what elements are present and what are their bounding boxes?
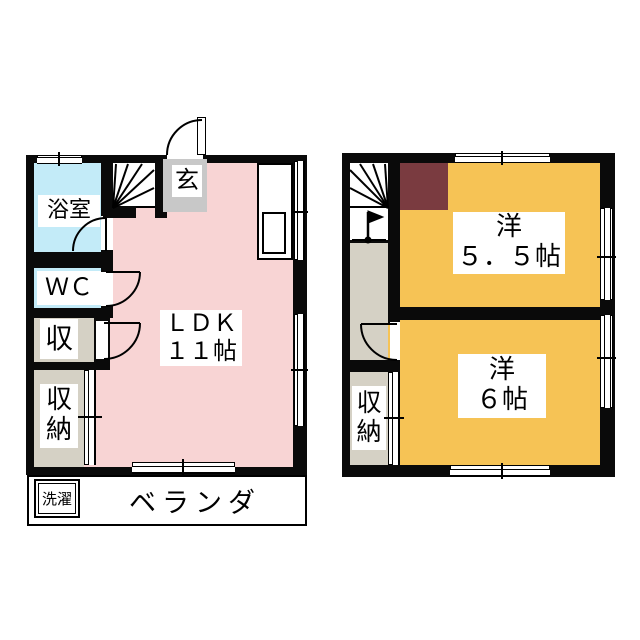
room-5-5-label-box: 洋 ５．５帖: [453, 212, 565, 274]
f1-window-bottom-mullion: [132, 466, 235, 473]
storage-label-box: 収: [40, 319, 78, 359]
f2-closet-label-box: 収 納: [352, 386, 386, 450]
f1-window-top-bathroom: [37, 155, 82, 164]
f2-closet-sliding-door: [388, 372, 400, 465]
f2-room6-doorway: [390, 322, 400, 360]
f1-closet-sliding-door-rail: [88, 370, 95, 465]
f2-window-right-upper: [600, 208, 613, 300]
f1-kitchen-counter: [257, 163, 293, 260]
f1-storage-doorway: [96, 321, 108, 359]
f1-window-right-upper: [294, 161, 305, 260]
f2-window-bottom-mullion: [450, 469, 550, 476]
f2-closet-sliding-door-rail: [392, 372, 399, 465]
f1-stairs: [113, 163, 155, 208]
f1-closet-label-char1: 収: [46, 386, 72, 416]
wc-label: ＷＣ: [45, 274, 93, 302]
f1-wall-understair: [103, 206, 136, 218]
entrance-label: 玄: [175, 167, 199, 195]
f1-entrance-door-leaf: [197, 117, 206, 155]
f1-closet-label-char2: 納: [46, 416, 72, 446]
room-6-label-line1: 洋: [489, 356, 515, 386]
floorplan-canvas: 浴室 ＷＣ 収 収 納 玄 ＬＤＫ １１帖 洗濯 ベランダ: [0, 0, 640, 640]
f2-closet-label-char1: 収: [356, 389, 381, 418]
f2-wall-corridor-closet: [342, 360, 400, 372]
f2-window-right-lower-mullion: [604, 315, 611, 408]
f2-window-top-mullion: [455, 156, 550, 163]
f2-wall-vertical: [388, 163, 400, 323]
wc-label-box: ＷＣ: [37, 271, 101, 305]
ldk-label-line1: ＬＤＫ: [165, 310, 237, 338]
ldk-label-line2: １１帖: [165, 338, 237, 366]
storage-label: 収: [45, 323, 73, 355]
room-5-5-label-line2: ５．５帖: [457, 243, 561, 273]
veranda-label-box: ベランダ: [85, 480, 305, 520]
f2-stairs: [350, 163, 388, 208]
f1-window-bottom: [132, 462, 235, 474]
f2-window-bottom: [450, 465, 550, 477]
f1-wall-wc-storage: [34, 308, 110, 318]
f1-closet-label-box: 収 納: [40, 384, 78, 448]
ldk-label-box: ＬＤＫ １１帖: [160, 310, 242, 366]
f1-kitchen-sink: [262, 212, 286, 254]
laundry-box: 洗濯: [34, 479, 80, 518]
room-5-5-label-line1: 洋: [496, 213, 522, 243]
f1-window-right-lower: [294, 314, 305, 426]
laundry-label: 洗濯: [42, 488, 72, 509]
f1-window-right-upper-mullion: [297, 161, 304, 260]
room-6-label-box: 洋 ６帖: [458, 354, 546, 418]
f2-stair-arrow-area: [350, 208, 388, 242]
entrance-label-box: 玄: [172, 165, 202, 197]
f2-wall-room-divider: [388, 307, 607, 320]
room-6-label-line2: ６帖: [476, 386, 528, 416]
f2-closet-label-char2: 納: [356, 418, 381, 447]
laundry-box-inner: 洗濯: [38, 483, 76, 514]
f1-wc-doorway: [101, 272, 113, 306]
f1-closet-sliding-door: [84, 370, 96, 465]
f2-window-right-upper-mullion: [604, 208, 611, 300]
f1-window-top-bathroom-mullion: [37, 157, 82, 164]
f2-corridor-floor: [350, 243, 388, 362]
f2-window-top: [455, 153, 550, 163]
bathroom-label: 浴室: [47, 198, 91, 223]
f2-loft-hatch: [400, 163, 448, 210]
veranda-label: ベランダ: [129, 481, 261, 520]
f2-window-right-lower: [600, 315, 613, 408]
bathroom-label-box: 浴室: [38, 195, 100, 227]
f1-bathroom-doorway: [101, 216, 113, 250]
f1-window-right-lower-mullion: [297, 314, 304, 426]
